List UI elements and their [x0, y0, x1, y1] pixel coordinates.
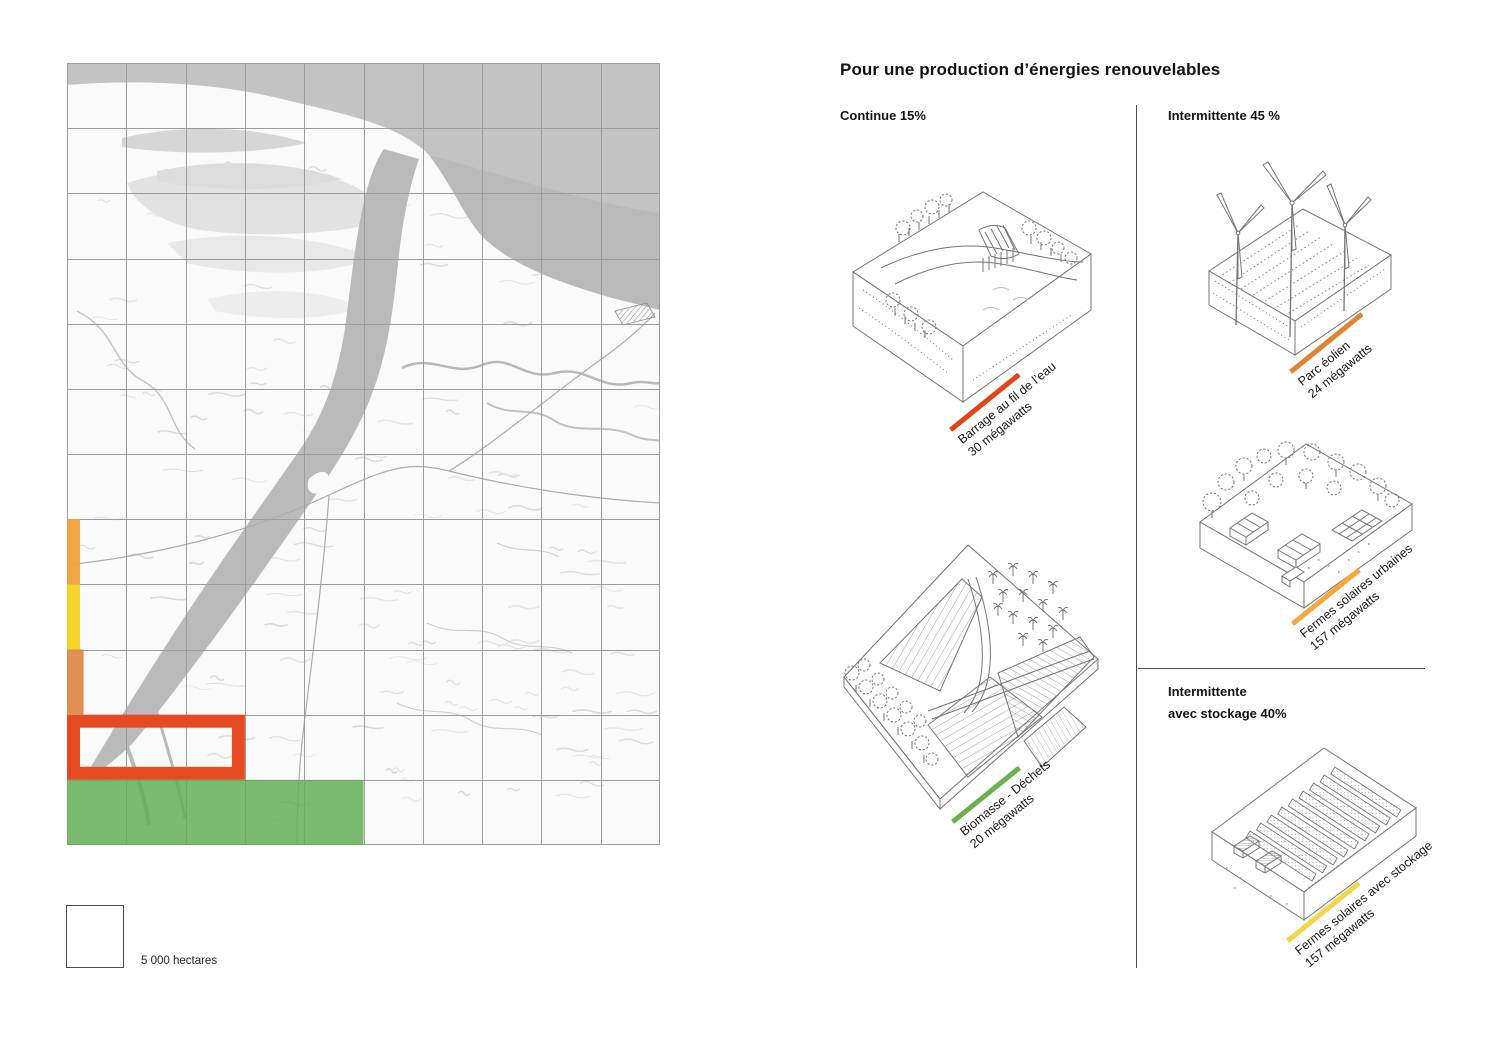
horizontal-divider [1138, 668, 1425, 669]
infographic: 5 000 hectares Pour une production d’éne… [0, 0, 1500, 1058]
dark-orange-strip [67, 650, 84, 715]
legend-square [66, 905, 124, 968]
section-intermittente-label: Intermittente 45 % [1168, 108, 1280, 123]
map-svg [67, 63, 660, 845]
section-stockage-line1: Intermittente [1168, 681, 1287, 703]
page-title: Pour une production d’énergies renouvela… [840, 60, 1220, 80]
section-continue-label: Continue 15% [840, 108, 926, 123]
land-use-map [67, 63, 660, 845]
green-zone [67, 780, 364, 845]
orange-strip [67, 519, 80, 584]
yellow-strip [67, 584, 80, 649]
biomass-fields-icon [828, 515, 1108, 815]
legend-label: 5 000 hectares [141, 955, 217, 967]
vertical-divider [1136, 105, 1137, 968]
